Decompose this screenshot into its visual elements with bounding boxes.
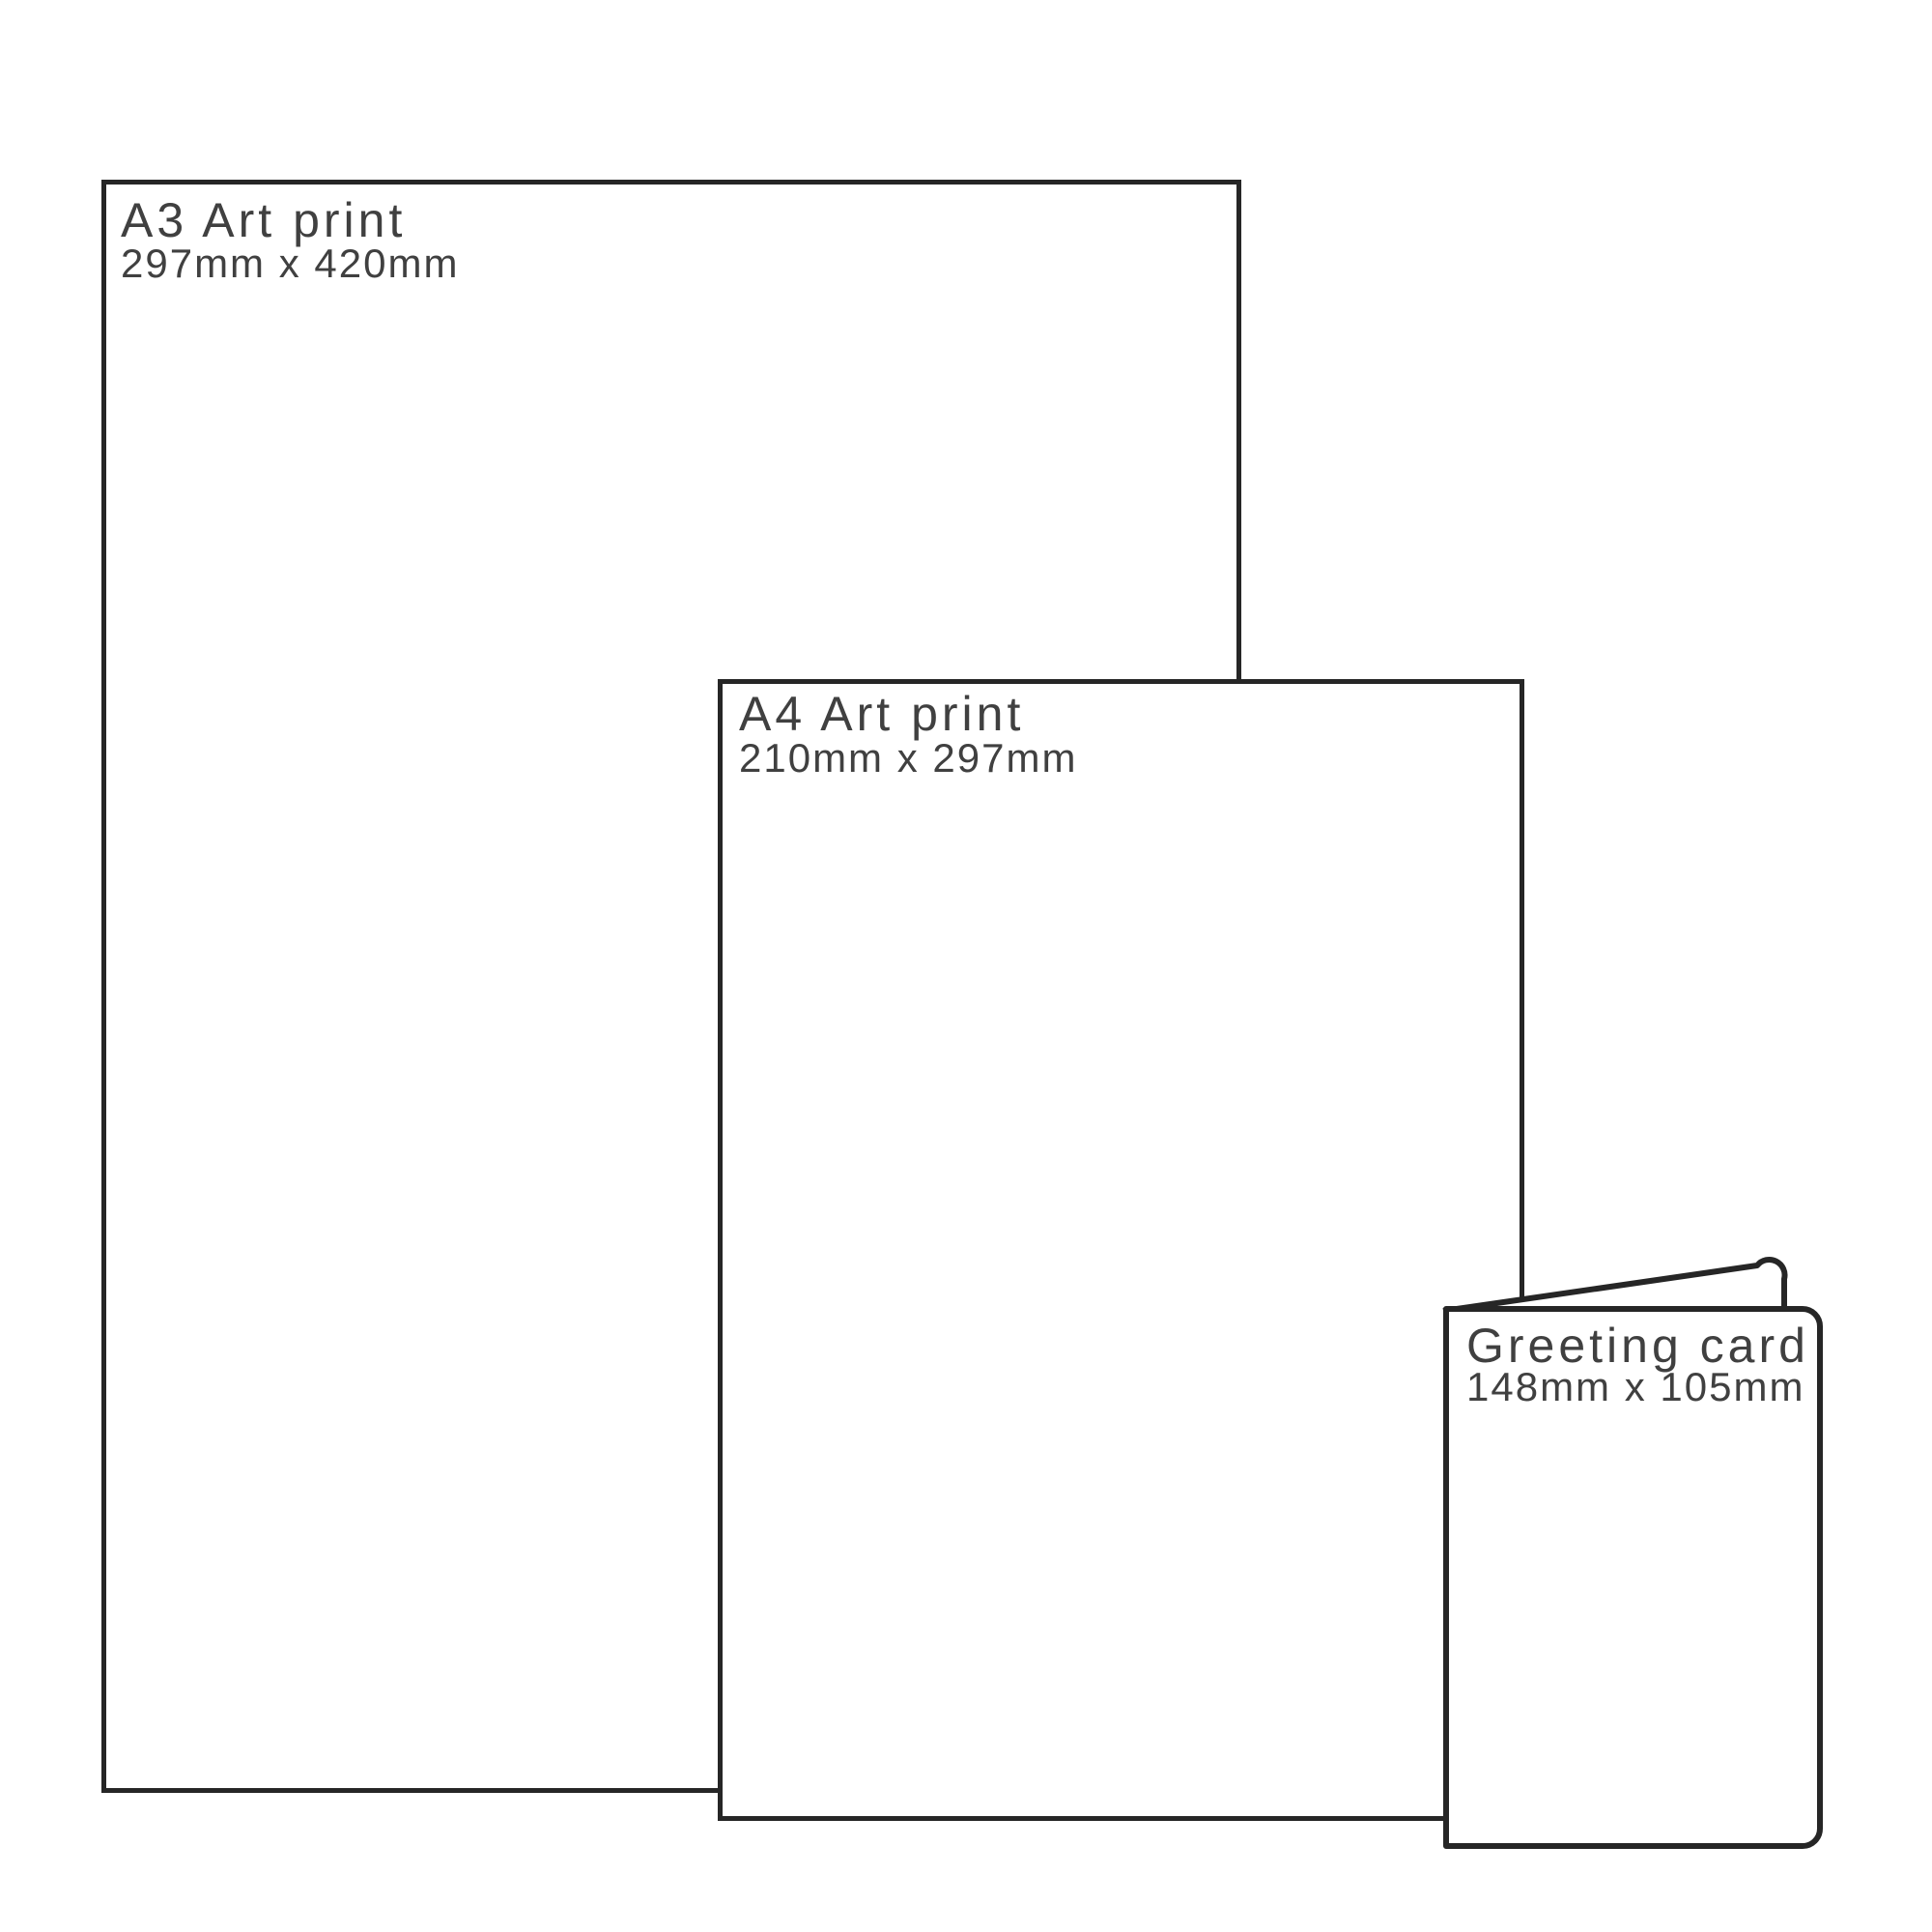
greeting-card-dimensions: 148mm x 105mm — [1466, 1364, 1804, 1409]
a4-print-outline — [721, 682, 1522, 1819]
a4-print-title: A4 Art print — [739, 687, 1024, 741]
a3-print-dimensions: 297mm x 420mm — [121, 241, 459, 286]
greeting-card-group: Greeting card 148mm x 105mm — [1443, 1260, 1820, 1846]
size-comparison-diagram: A3 Art print 297mm x 420mm A4 Art print … — [0, 0, 1932, 1932]
a4-print-dimensions: 210mm x 297mm — [739, 735, 1077, 781]
a3-print-title: A3 Art print — [121, 193, 406, 247]
a4-print-group: A4 Art print 210mm x 297mm — [721, 682, 1522, 1819]
size-comparison-canvas: A3 Art print 297mm x 420mm A4 Art print … — [0, 0, 1932, 1932]
